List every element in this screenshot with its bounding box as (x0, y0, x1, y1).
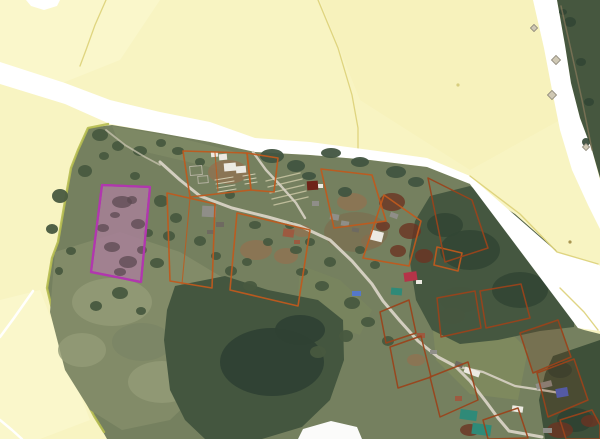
building-crimson (403, 271, 417, 282)
tree-clusters-north (338, 187, 352, 197)
map-viewport[interactable] (0, 0, 600, 439)
building-redbrown (282, 228, 294, 237)
building-gray (430, 350, 437, 354)
tree-scatter (242, 258, 252, 266)
building-white (219, 154, 227, 161)
tree-scatter (112, 287, 128, 299)
survey-dots (456, 83, 459, 86)
pool-blue (352, 291, 361, 296)
building-gray (312, 201, 319, 206)
tree-scatter (99, 152, 109, 160)
field-west-light-patches (72, 278, 152, 326)
tree-scatter (296, 268, 308, 276)
tree-scatter (290, 246, 302, 254)
tree-clusters-north (408, 177, 424, 187)
roadside-tree-dark (576, 58, 586, 66)
tree-scatter (156, 139, 166, 147)
building-white (224, 162, 237, 171)
selected-parcel-texture (104, 242, 120, 252)
tree-scatter (355, 246, 365, 254)
building-white (318, 184, 323, 188)
tree-scatter (52, 189, 68, 203)
tree-scatter (249, 221, 261, 229)
forest-east-dark (427, 213, 463, 237)
building-teal (391, 288, 403, 296)
building-darkgray (216, 222, 224, 227)
tree-scatter (263, 238, 273, 246)
tree-scatter (344, 297, 360, 309)
survey-dots (568, 240, 571, 243)
selected-parcel-texture (127, 196, 137, 204)
forest-central-dark (275, 315, 325, 345)
tree-scatter (194, 236, 206, 246)
selected-parcel-texture (137, 246, 147, 254)
tree-scatter (130, 172, 140, 180)
tree-scatter (361, 317, 375, 327)
selected-parcel-texture (110, 212, 120, 218)
forest-east-dark (492, 272, 548, 308)
field-west-light-patches (58, 333, 106, 367)
bare-soil-patches (407, 354, 425, 366)
building-gray (543, 428, 552, 433)
tree-scatter (305, 238, 315, 246)
building-darkred (307, 181, 319, 191)
roadside-tree-dark (584, 98, 594, 106)
selected-parcel-texture (131, 219, 145, 229)
tree-scatter (150, 258, 164, 268)
tree-scatter (243, 281, 257, 291)
tree-clusters-north (321, 148, 341, 158)
dead-brush-patches (390, 245, 406, 257)
selected-parcel-texture (97, 224, 109, 232)
tree-clusters-north (302, 172, 316, 180)
building-white (236, 166, 247, 174)
tree-scatter (78, 165, 92, 177)
building-white (416, 280, 422, 284)
map-canvas[interactable] (0, 0, 600, 439)
tree-clusters-north (386, 166, 406, 178)
tree-scatter (315, 281, 329, 291)
tree-scatter (324, 257, 336, 267)
tree-scatter (66, 247, 76, 255)
building-redbrown (294, 240, 300, 244)
tree-clusters-north (351, 157, 369, 167)
tree-scatter (339, 330, 353, 342)
tree-scatter (154, 195, 168, 207)
tree-scatter (310, 346, 326, 358)
tree-scatter (55, 267, 63, 275)
selected-parcel-texture (119, 256, 137, 268)
tree-scatter (195, 158, 205, 166)
building-darkgray (207, 230, 214, 234)
dead-brush-patches (415, 249, 433, 263)
building-redbrown (455, 396, 462, 401)
tree-scatter (90, 301, 102, 311)
tree-clusters-north (287, 160, 305, 172)
field-west-shade-patches (112, 323, 172, 361)
selected-parcel-texture (114, 268, 126, 276)
tree-scatter (46, 224, 58, 234)
tree-scatter (170, 213, 182, 223)
tree-scatter (136, 307, 146, 315)
tree-scatter (370, 261, 380, 269)
